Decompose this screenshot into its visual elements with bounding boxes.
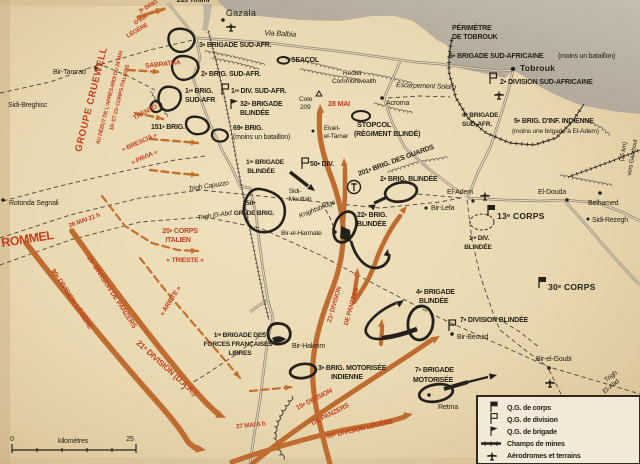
svg-text:Bir-Lefa: Bir-Lefa xyxy=(431,204,454,212)
svg-text:SEACOL: SEACOL xyxy=(291,57,320,64)
svg-text:Bir-Tamrad: Bir-Tamrad xyxy=(53,68,86,76)
svg-text:FORCES FRANÇAISES: FORCES FRANÇAISES xyxy=(204,341,274,348)
svg-text:28 MAI: 28 MAI xyxy=(328,99,350,108)
svg-text:32e BRIGADE: 32e BRIGADE xyxy=(240,101,283,108)
svg-text:4e BRIGADE: 4e BRIGADE xyxy=(462,112,499,119)
svg-text:El-Adem: El-Adem xyxy=(447,188,473,196)
svg-text:Réduit: Réduit xyxy=(343,70,361,77)
svg-text:DE TOBROUK: DE TOBROUK xyxy=(452,33,499,41)
svg-text:Sidi-: Sidi- xyxy=(289,188,301,195)
svg-text:BLINDÉE: BLINDÉE xyxy=(419,296,449,305)
svg-text:Via Balbia: Via Balbia xyxy=(264,28,296,39)
svg-text:209: 209 xyxy=(300,104,311,111)
svg-text:1re DIV.: 1re DIV. xyxy=(469,235,490,242)
svg-text:STOPCOL: STOPCOL xyxy=(357,120,392,129)
svg-text:BLINDÉE: BLINDÉE xyxy=(240,108,270,117)
svg-text:7e BRIGADE: 7e BRIGADE xyxy=(415,367,454,374)
svg-text:« TRIESTE »: « TRIESTE » xyxy=(166,257,204,264)
svg-text:3e BRIGADE SUD-AFR.: 3e BRIGADE SUD-AFR. xyxy=(199,42,272,49)
svg-text:Eluet-: Eluet- xyxy=(324,125,340,132)
svg-text:Bir-Hakeim: Bir-Hakeim xyxy=(292,342,325,350)
svg-text:7e DIVISION BLINDÉE: 7e DIVISION BLINDÉE xyxy=(460,315,529,324)
svg-text:25: 25 xyxy=(126,436,134,443)
svg-text:INDIENNE: INDIENNE xyxy=(331,374,363,381)
svg-text:69e BRIG.: 69e BRIG. xyxy=(233,125,263,132)
svg-text:30e CORPS: 30e CORPS xyxy=(548,282,596,292)
svg-text:(moins une brigade à El-Adem): (moins une brigade à El-Adem) xyxy=(512,128,599,135)
svg-text:BLINDÉE: BLINDÉE xyxy=(247,166,275,175)
svg-text:Acroma: Acroma xyxy=(386,99,409,107)
svg-text:3e BRIG. MOTORISÉE: 3e BRIG. MOTORISÉE xyxy=(318,363,387,372)
svg-text:Q.G. de brigade: Q.G. de brigade xyxy=(507,428,557,436)
svg-text:0: 0 xyxy=(10,436,14,443)
svg-text:SUD-AFR: SUD-AFR xyxy=(185,97,215,104)
svg-text:Bir-el-Goubi: Bir-el-Goubi xyxy=(536,355,572,363)
svg-text:151e BRIG.: 151e BRIG. xyxy=(151,124,185,131)
svg-text:Commonwealth: Commonwealth xyxy=(332,78,377,85)
svg-text:SUD-AFR.: SUD-AFR. xyxy=(462,121,492,128)
svg-text:LIBRES: LIBRES xyxy=(229,350,253,357)
svg-text:MOTORISÉE: MOTORISÉE xyxy=(413,375,454,384)
svg-text:2e DIVISION SUD-AFRICAINE: 2e DIVISION SUD-AFRICAINE xyxy=(500,78,593,86)
svg-text:ITALIEN: ITALIEN xyxy=(165,237,190,244)
svg-text:(RÉGIMENT BLINDÉ): (RÉGIMENT BLINDÉ) xyxy=(354,129,420,138)
svg-text:Sidi-Rezegh: Sidi-Rezegh xyxy=(592,217,628,224)
svg-text:Rotonda Segnali: Rotonda Segnali xyxy=(9,199,59,207)
svg-text:Aérodromes et terrains: Aérodromes et terrains xyxy=(507,452,581,460)
svg-text:1re DIV. SUD-AFR.: 1re DIV. SUD-AFR. xyxy=(231,88,287,95)
svg-text:Retma: Retma xyxy=(438,403,458,411)
svg-text:(moins un bataillon): (moins un bataillon) xyxy=(233,134,290,141)
svg-text:4e BRIGADE: 4e BRIGADE xyxy=(416,289,455,296)
svg-text:Gazala: Gazala xyxy=(226,8,256,18)
svg-text:2e BRIG. BLINDÉE: 2e BRIG. BLINDÉE xyxy=(380,174,438,183)
svg-text:Belhamed: Belhamed xyxy=(588,199,619,207)
svg-text:Bir-el-Harmate: Bir-el-Harmate xyxy=(281,230,322,237)
svg-text:Q.G. de corps: Q.G. de corps xyxy=(507,404,551,412)
svg-text:203 Tmimi: 203 Tmimi xyxy=(177,0,210,4)
svg-text:GR. DE BRIG.: GR. DE BRIG. xyxy=(234,210,275,217)
svg-text:BLINDÉE: BLINDÉE xyxy=(357,219,387,228)
svg-text:Bir-Beouid: Bir-Beouid xyxy=(457,333,488,341)
svg-text:(moins un bataillon): (moins un bataillon) xyxy=(558,53,615,60)
svg-text:6e BRIGADE SUD-AFRICAINE: 6e BRIGADE SUD-AFRICAINE xyxy=(449,52,544,60)
svg-text:Q.G. de division: Q.G. de division xyxy=(507,416,558,424)
svg-text:Sidi-Breghisc: Sidi-Breghisc xyxy=(8,101,48,109)
svg-text:PÉRIMÈTRE: PÉRIMÈTRE xyxy=(452,23,492,32)
svg-text:Mouftah: Mouftah xyxy=(289,196,312,203)
svg-text:el-Tamar: el-Tamar xyxy=(324,133,349,140)
svg-text:22e BRIG.: 22e BRIG. xyxy=(357,212,387,219)
svg-text:Champs de mines: Champs de mines xyxy=(507,440,565,448)
svg-text:Tobrouk: Tobrouk xyxy=(520,63,555,73)
svg-text:El-Douda: El-Douda xyxy=(538,188,566,196)
svg-text:BLINDÉE: BLINDÉE xyxy=(464,242,492,251)
svg-text:Cote: Cote xyxy=(299,96,313,103)
svg-text:13e CORPS: 13e CORPS xyxy=(497,211,545,221)
svg-text:5e BRIG. D'INF. INDIENNE: 5e BRIG. D'INF. INDIENNE xyxy=(514,118,594,125)
svg-text:kilomètres: kilomètres xyxy=(58,438,89,445)
svg-text:2e BRIG. SUD-AFR.: 2e BRIG. SUD-AFR. xyxy=(201,71,261,78)
svg-text:20e CORPS: 20e CORPS xyxy=(162,228,198,235)
svg-text:1re BRIGADE DES: 1re BRIGADE DES xyxy=(214,332,267,339)
svg-text:50e DIV.: 50e DIV. xyxy=(310,161,334,168)
